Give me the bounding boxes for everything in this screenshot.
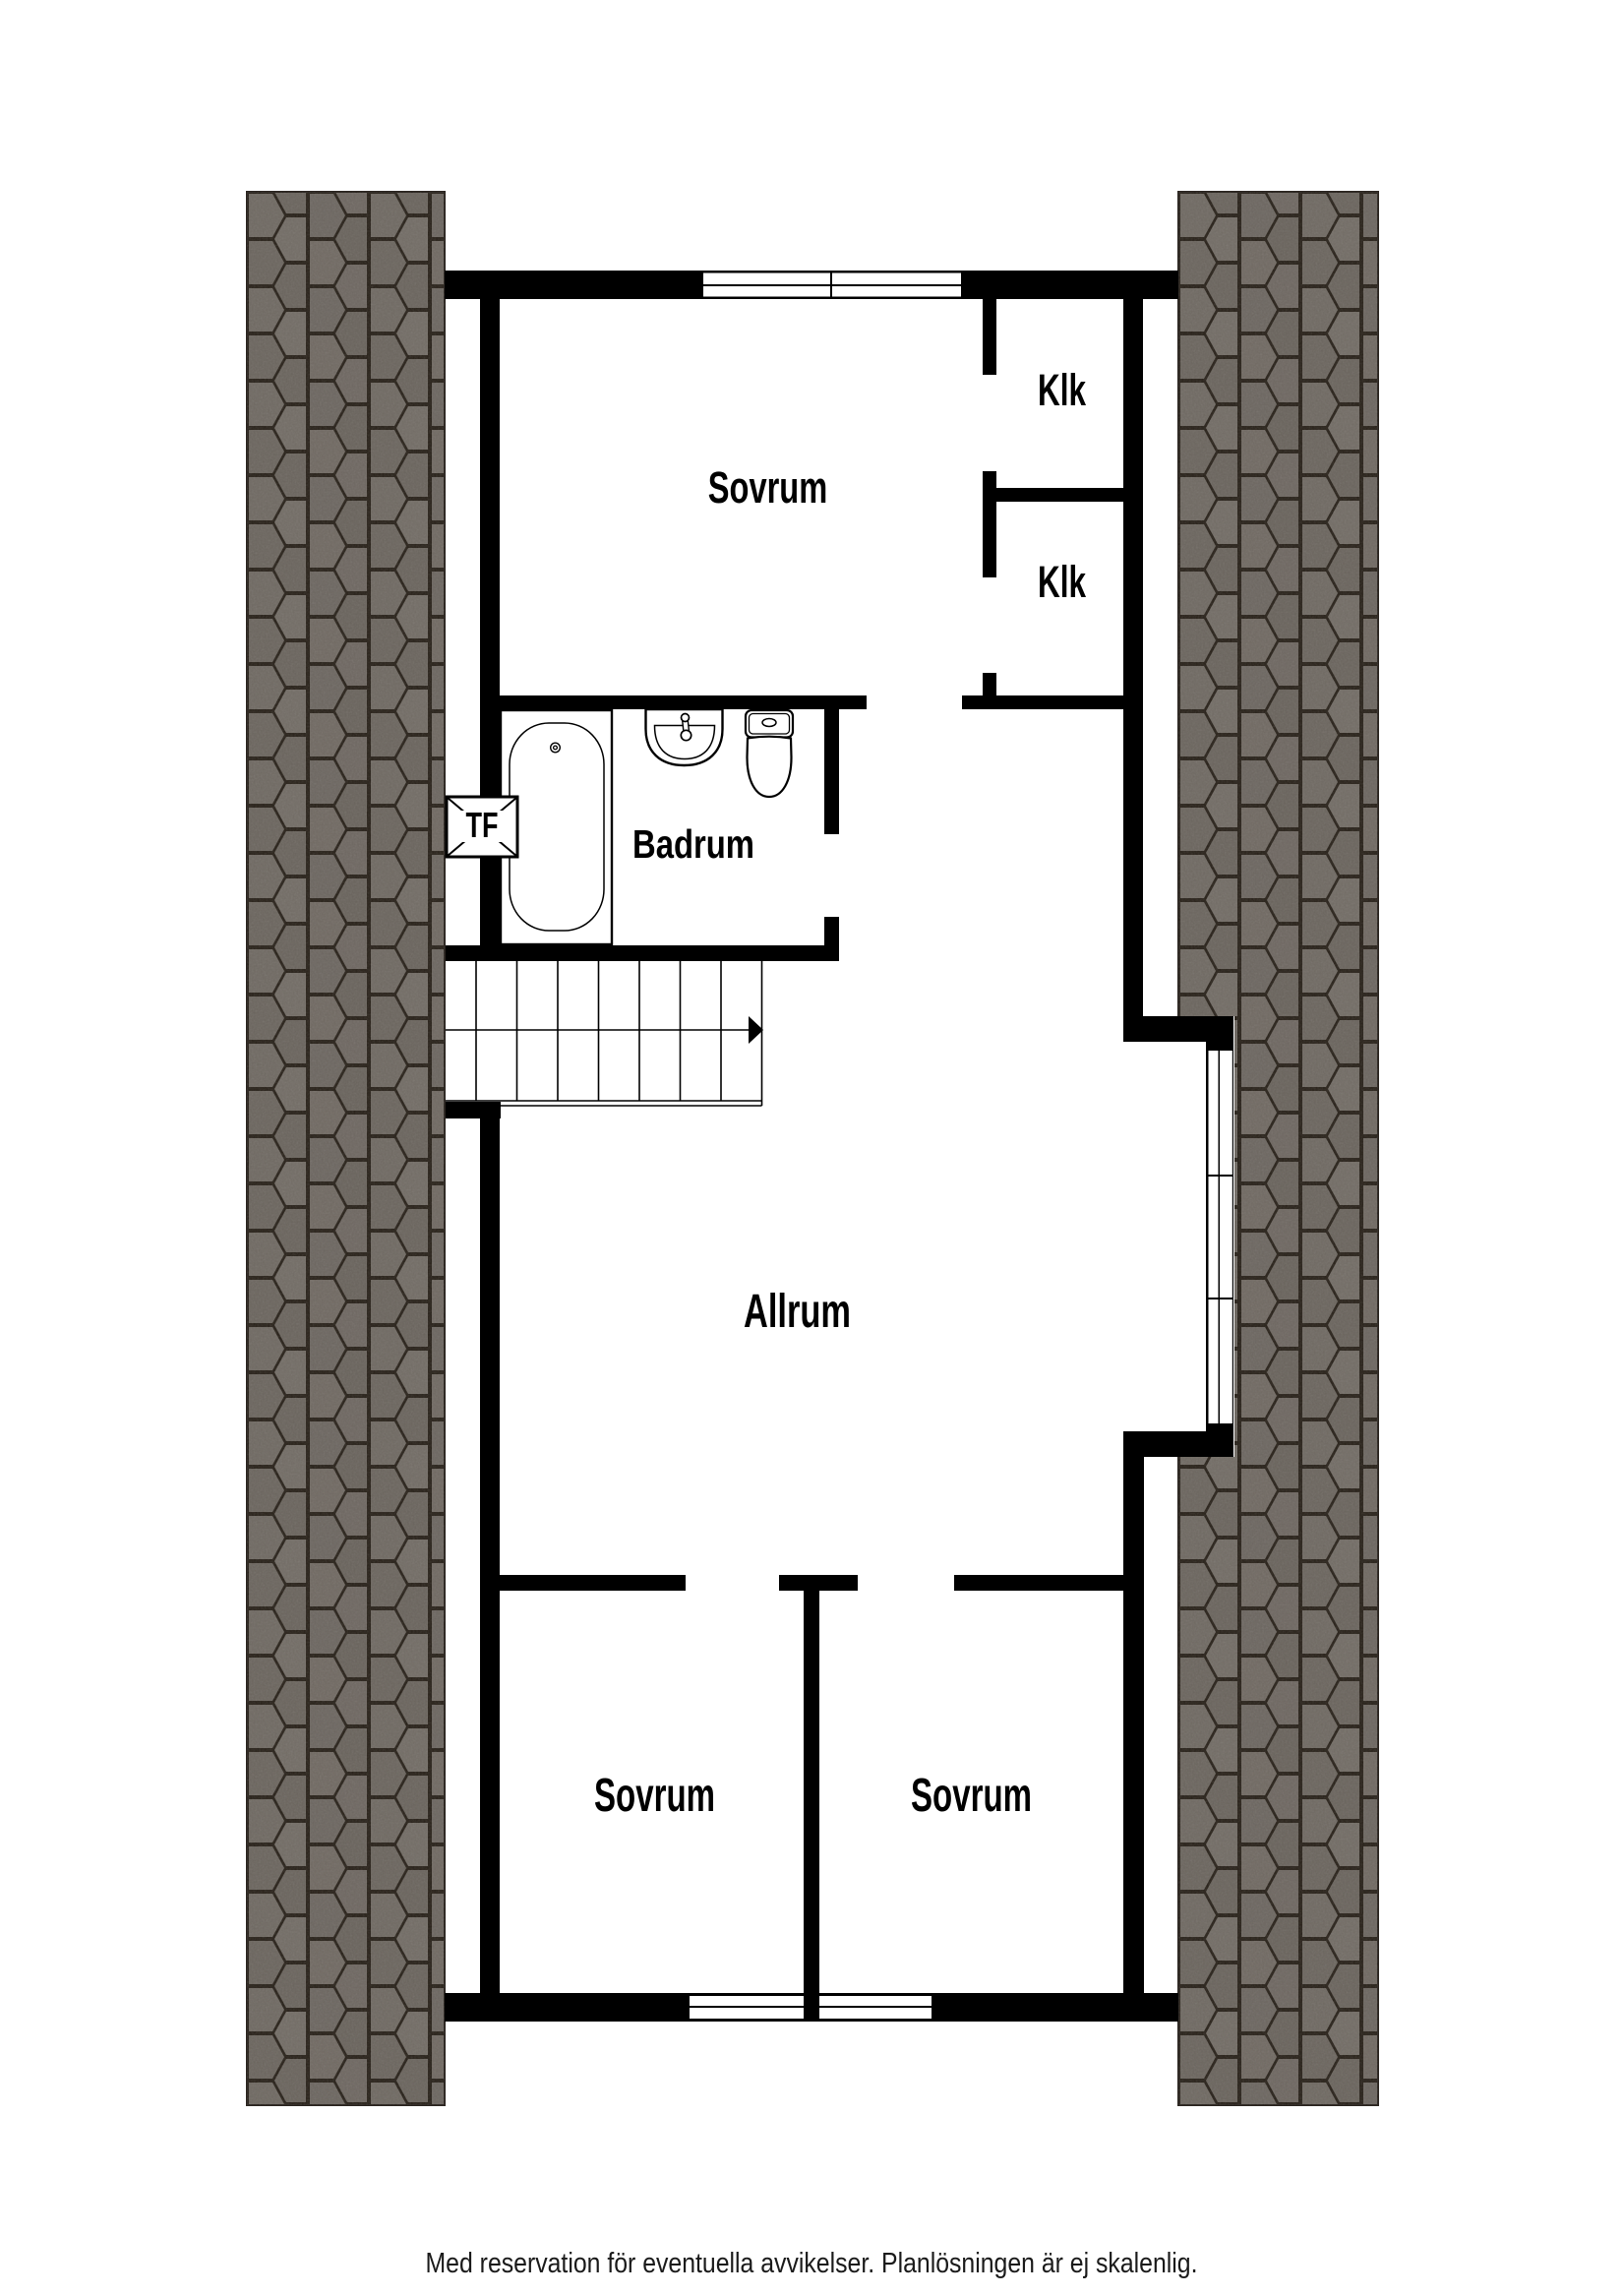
- svg-text:TF: TF: [466, 805, 499, 845]
- svg-text:Sovrum: Sovrum: [911, 1770, 1032, 1822]
- svg-text:Sovrum: Sovrum: [594, 1770, 715, 1822]
- svg-text:Med reservation för eventuella: Med reservation för eventuella avvikelse…: [426, 2248, 1198, 2279]
- svg-text:Allrum: Allrum: [744, 1286, 851, 1338]
- svg-text:Klk: Klk: [1038, 557, 1087, 607]
- svg-text:Badrum: Badrum: [632, 821, 754, 867]
- svg-text:Sovrum: Sovrum: [708, 462, 828, 513]
- svg-text:Klk: Klk: [1038, 365, 1087, 415]
